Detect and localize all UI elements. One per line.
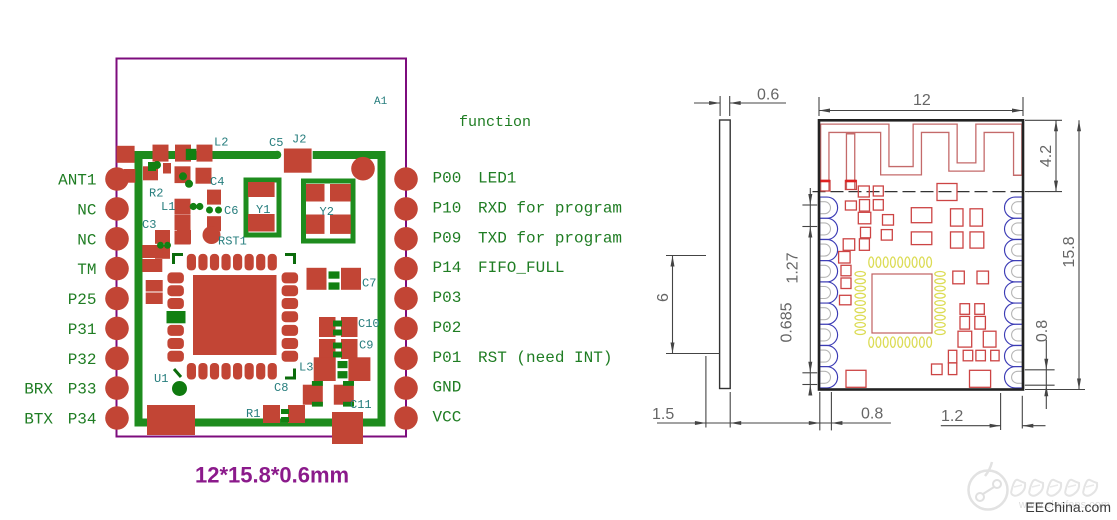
svg-text:function: function xyxy=(459,114,531,131)
svg-text:0.8: 0.8 xyxy=(1034,320,1051,342)
svg-text:L1: L1 xyxy=(161,200,175,214)
svg-text:4.2: 4.2 xyxy=(1038,145,1055,167)
svg-text:P14: P14 xyxy=(433,259,462,277)
svg-text:12*15.8*0.6mm: 12*15.8*0.6mm xyxy=(195,463,349,488)
svg-text:P32: P32 xyxy=(68,351,97,369)
svg-text:U1: U1 xyxy=(154,372,168,386)
svg-text:C9: C9 xyxy=(359,339,373,353)
svg-text:C3: C3 xyxy=(142,218,156,232)
svg-text:1.27: 1.27 xyxy=(785,252,802,283)
svg-text:C5: C5 xyxy=(269,136,283,150)
svg-text:P09: P09 xyxy=(433,229,462,247)
svg-text:J2: J2 xyxy=(292,133,306,147)
svg-text:LED1: LED1 xyxy=(478,170,516,188)
svg-text:VCC: VCC xyxy=(433,409,462,427)
svg-text:L3: L3 xyxy=(299,361,313,375)
svg-text:FIFO_FULL: FIFO_FULL xyxy=(478,259,564,277)
svg-text:L2: L2 xyxy=(214,136,228,150)
svg-text:P34: P34 xyxy=(68,411,97,429)
svg-text:Y1: Y1 xyxy=(256,203,270,217)
svg-text:12: 12 xyxy=(913,92,931,109)
svg-text:A1: A1 xyxy=(374,96,388,108)
svg-text:P31: P31 xyxy=(68,321,97,339)
svg-text:0.8: 0.8 xyxy=(861,406,883,423)
svg-text:P01: P01 xyxy=(433,349,462,367)
svg-text:ANT1: ANT1 xyxy=(58,172,96,190)
svg-text:TM: TM xyxy=(77,261,96,279)
svg-text:TXD for program: TXD for program xyxy=(478,229,622,247)
svg-text:P10: P10 xyxy=(433,199,462,217)
svg-text:1.5: 1.5 xyxy=(652,406,674,423)
svg-text:R2: R2 xyxy=(149,187,163,201)
svg-text:EEChina.com: EEChina.com xyxy=(1025,499,1111,515)
svg-text:RXD for program: RXD for program xyxy=(478,199,622,217)
svg-text:RST1: RST1 xyxy=(218,235,247,249)
svg-text:NC: NC xyxy=(77,231,96,249)
svg-text:RST (need INT): RST (need INT) xyxy=(478,349,612,367)
svg-text:C10: C10 xyxy=(358,317,380,331)
svg-text:NC: NC xyxy=(77,201,96,219)
svg-text:C8: C8 xyxy=(274,381,288,395)
svg-text:C4: C4 xyxy=(210,175,224,189)
svg-text:15.8: 15.8 xyxy=(1061,236,1078,267)
svg-text:GND: GND xyxy=(433,379,462,397)
svg-text:P33: P33 xyxy=(68,381,97,399)
svg-text:C7: C7 xyxy=(362,277,376,291)
svg-text:C11: C11 xyxy=(350,398,372,412)
svg-text:Y2: Y2 xyxy=(320,205,334,219)
svg-text:P02: P02 xyxy=(433,319,462,337)
svg-text:R1: R1 xyxy=(246,407,260,421)
svg-text:P03: P03 xyxy=(433,289,462,307)
svg-text:P25: P25 xyxy=(68,291,97,309)
svg-text:6: 6 xyxy=(655,293,672,302)
svg-text:P00: P00 xyxy=(433,170,462,188)
svg-text:0.6: 0.6 xyxy=(757,87,779,104)
svg-text:1.2: 1.2 xyxy=(941,408,963,425)
svg-text:BTX: BTX xyxy=(24,411,53,429)
svg-text:0.685: 0.685 xyxy=(779,302,796,342)
svg-text:BRX: BRX xyxy=(24,381,53,399)
svg-text:C6: C6 xyxy=(224,204,238,218)
